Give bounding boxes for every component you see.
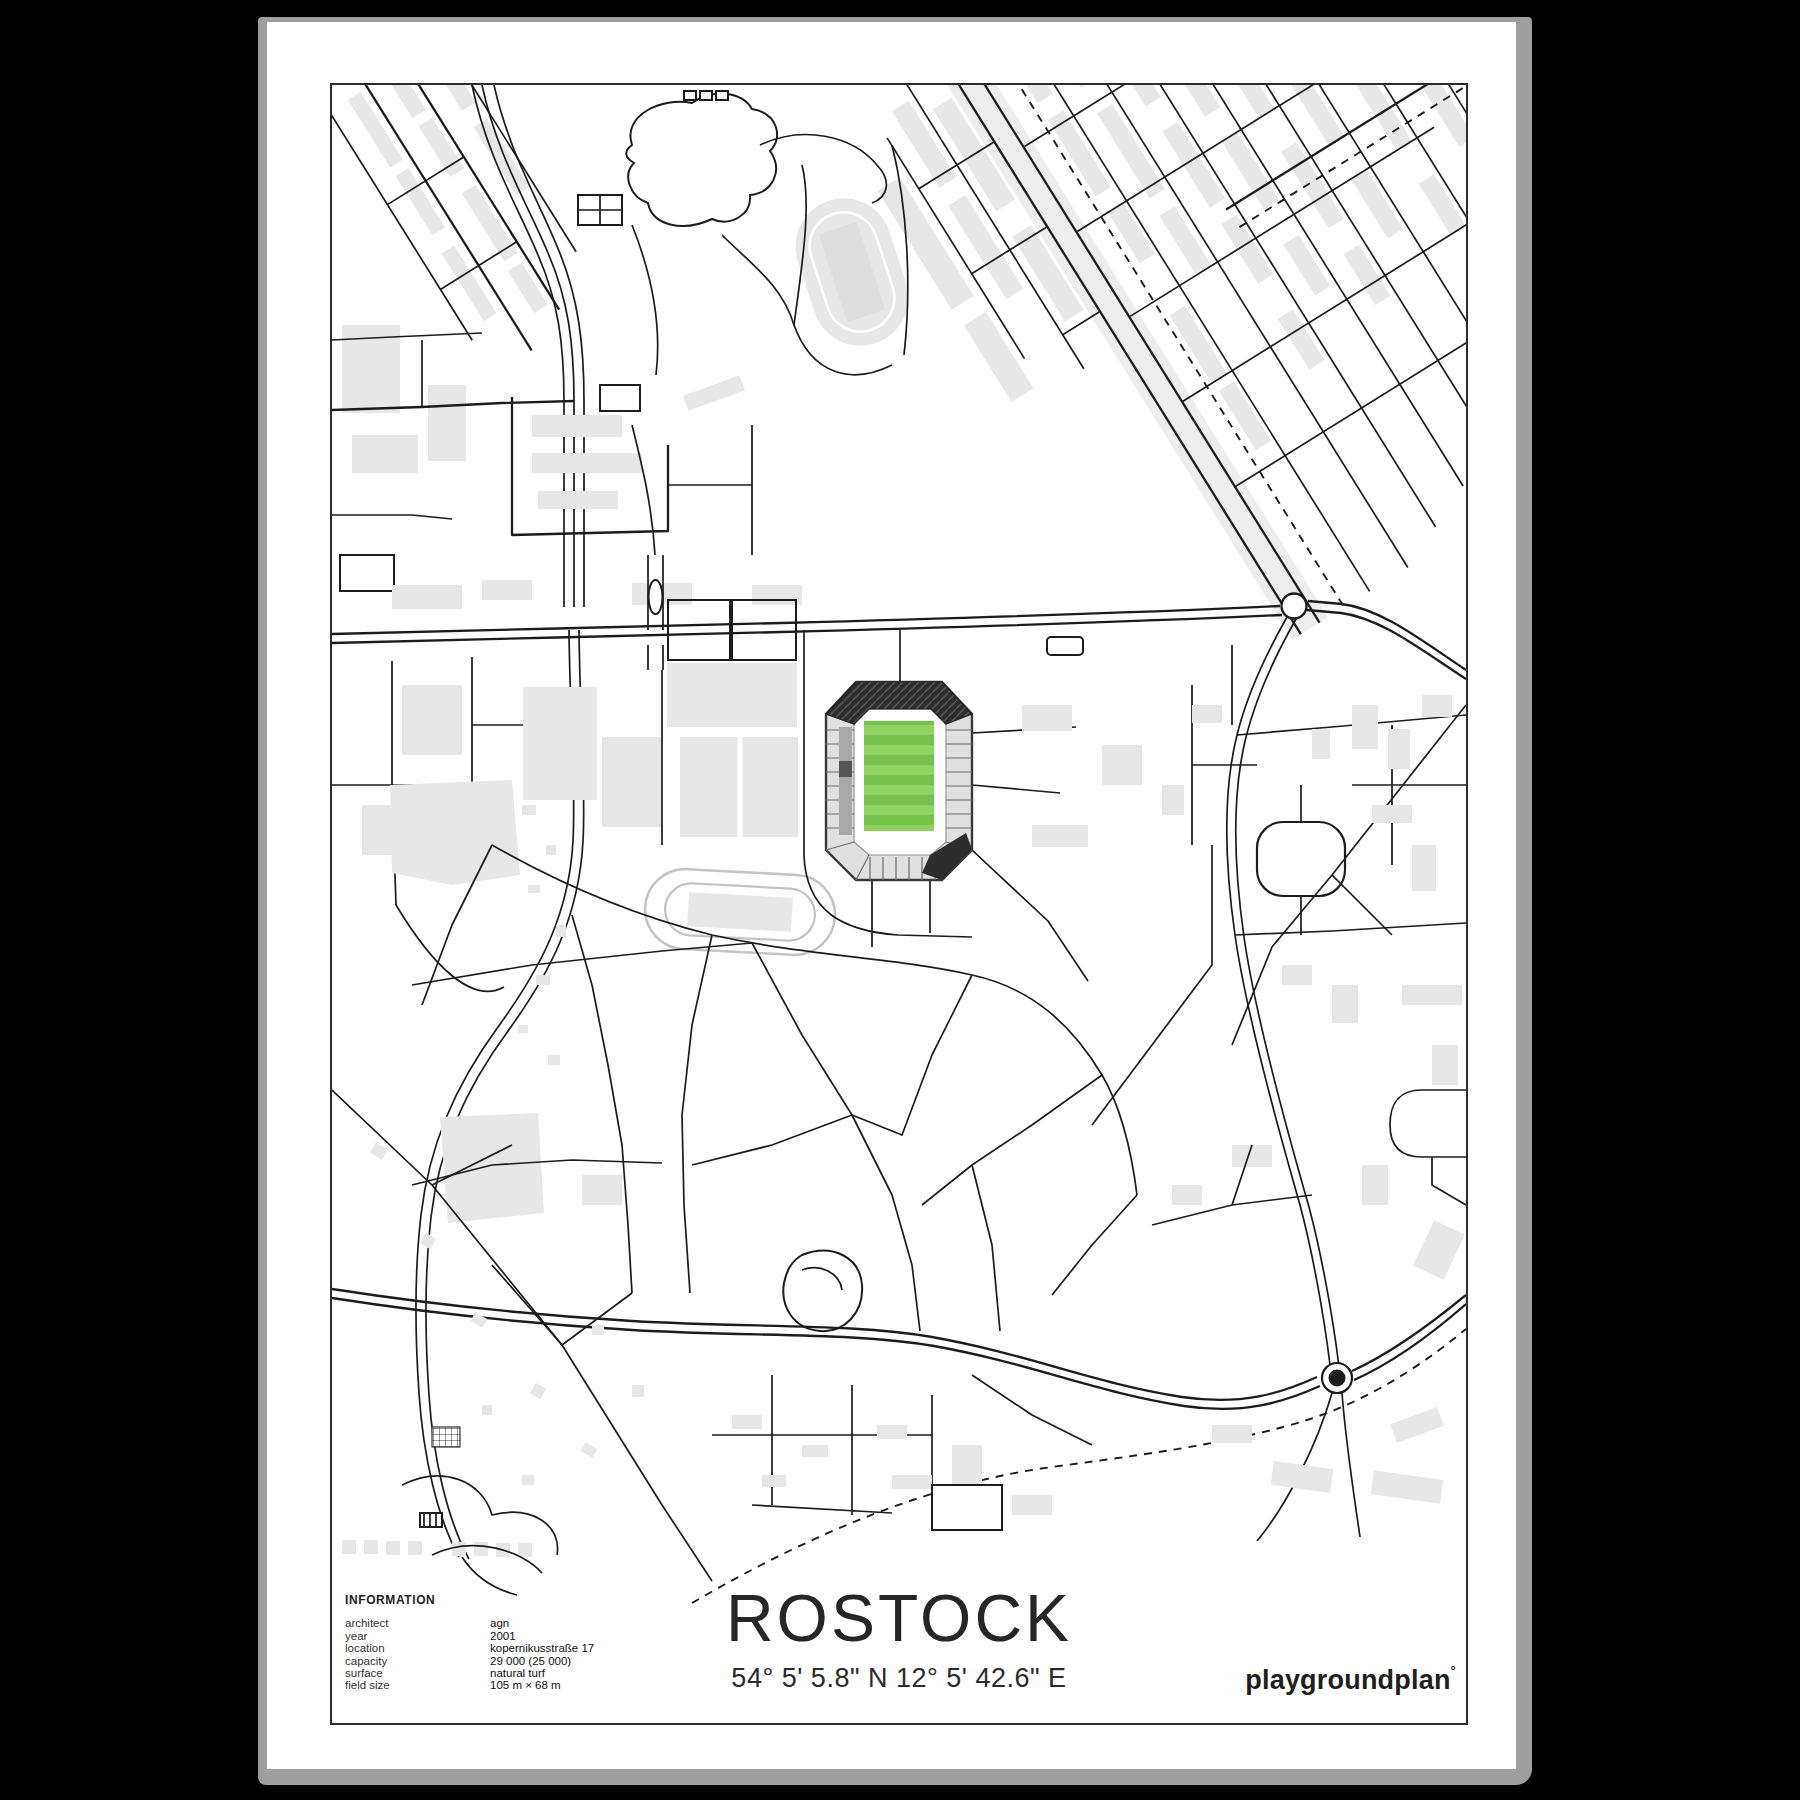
roundabout-main [1282,594,1307,619]
poster-frame: INFORMATION architectagn year2001 locati… [258,17,1532,1785]
map-frame: INFORMATION architectagn year2001 locati… [330,83,1468,1725]
right-loop [1390,1090,1466,1205]
stadium-west-stand-strip [839,727,852,835]
district-south [712,1375,1092,1530]
mockup-background: INFORMATION architectagn year2001 locati… [0,0,1800,1800]
district-top-right [814,85,1466,700]
allotment-hall [432,1427,460,1447]
roundabout-south [1329,1370,1346,1387]
poster-paper: INFORMATION architectagn year2001 locati… [267,22,1516,1769]
stadium-pitch [864,721,934,831]
city-map [332,85,1466,1723]
stadium [804,630,1088,981]
brand-degree-mark: ° [1451,1663,1456,1678]
poster-title: ROSTOCK [332,1585,1466,1651]
district-south-east [1152,1145,1465,1504]
brand-logo: playgroundplan° [1245,1663,1456,1696]
